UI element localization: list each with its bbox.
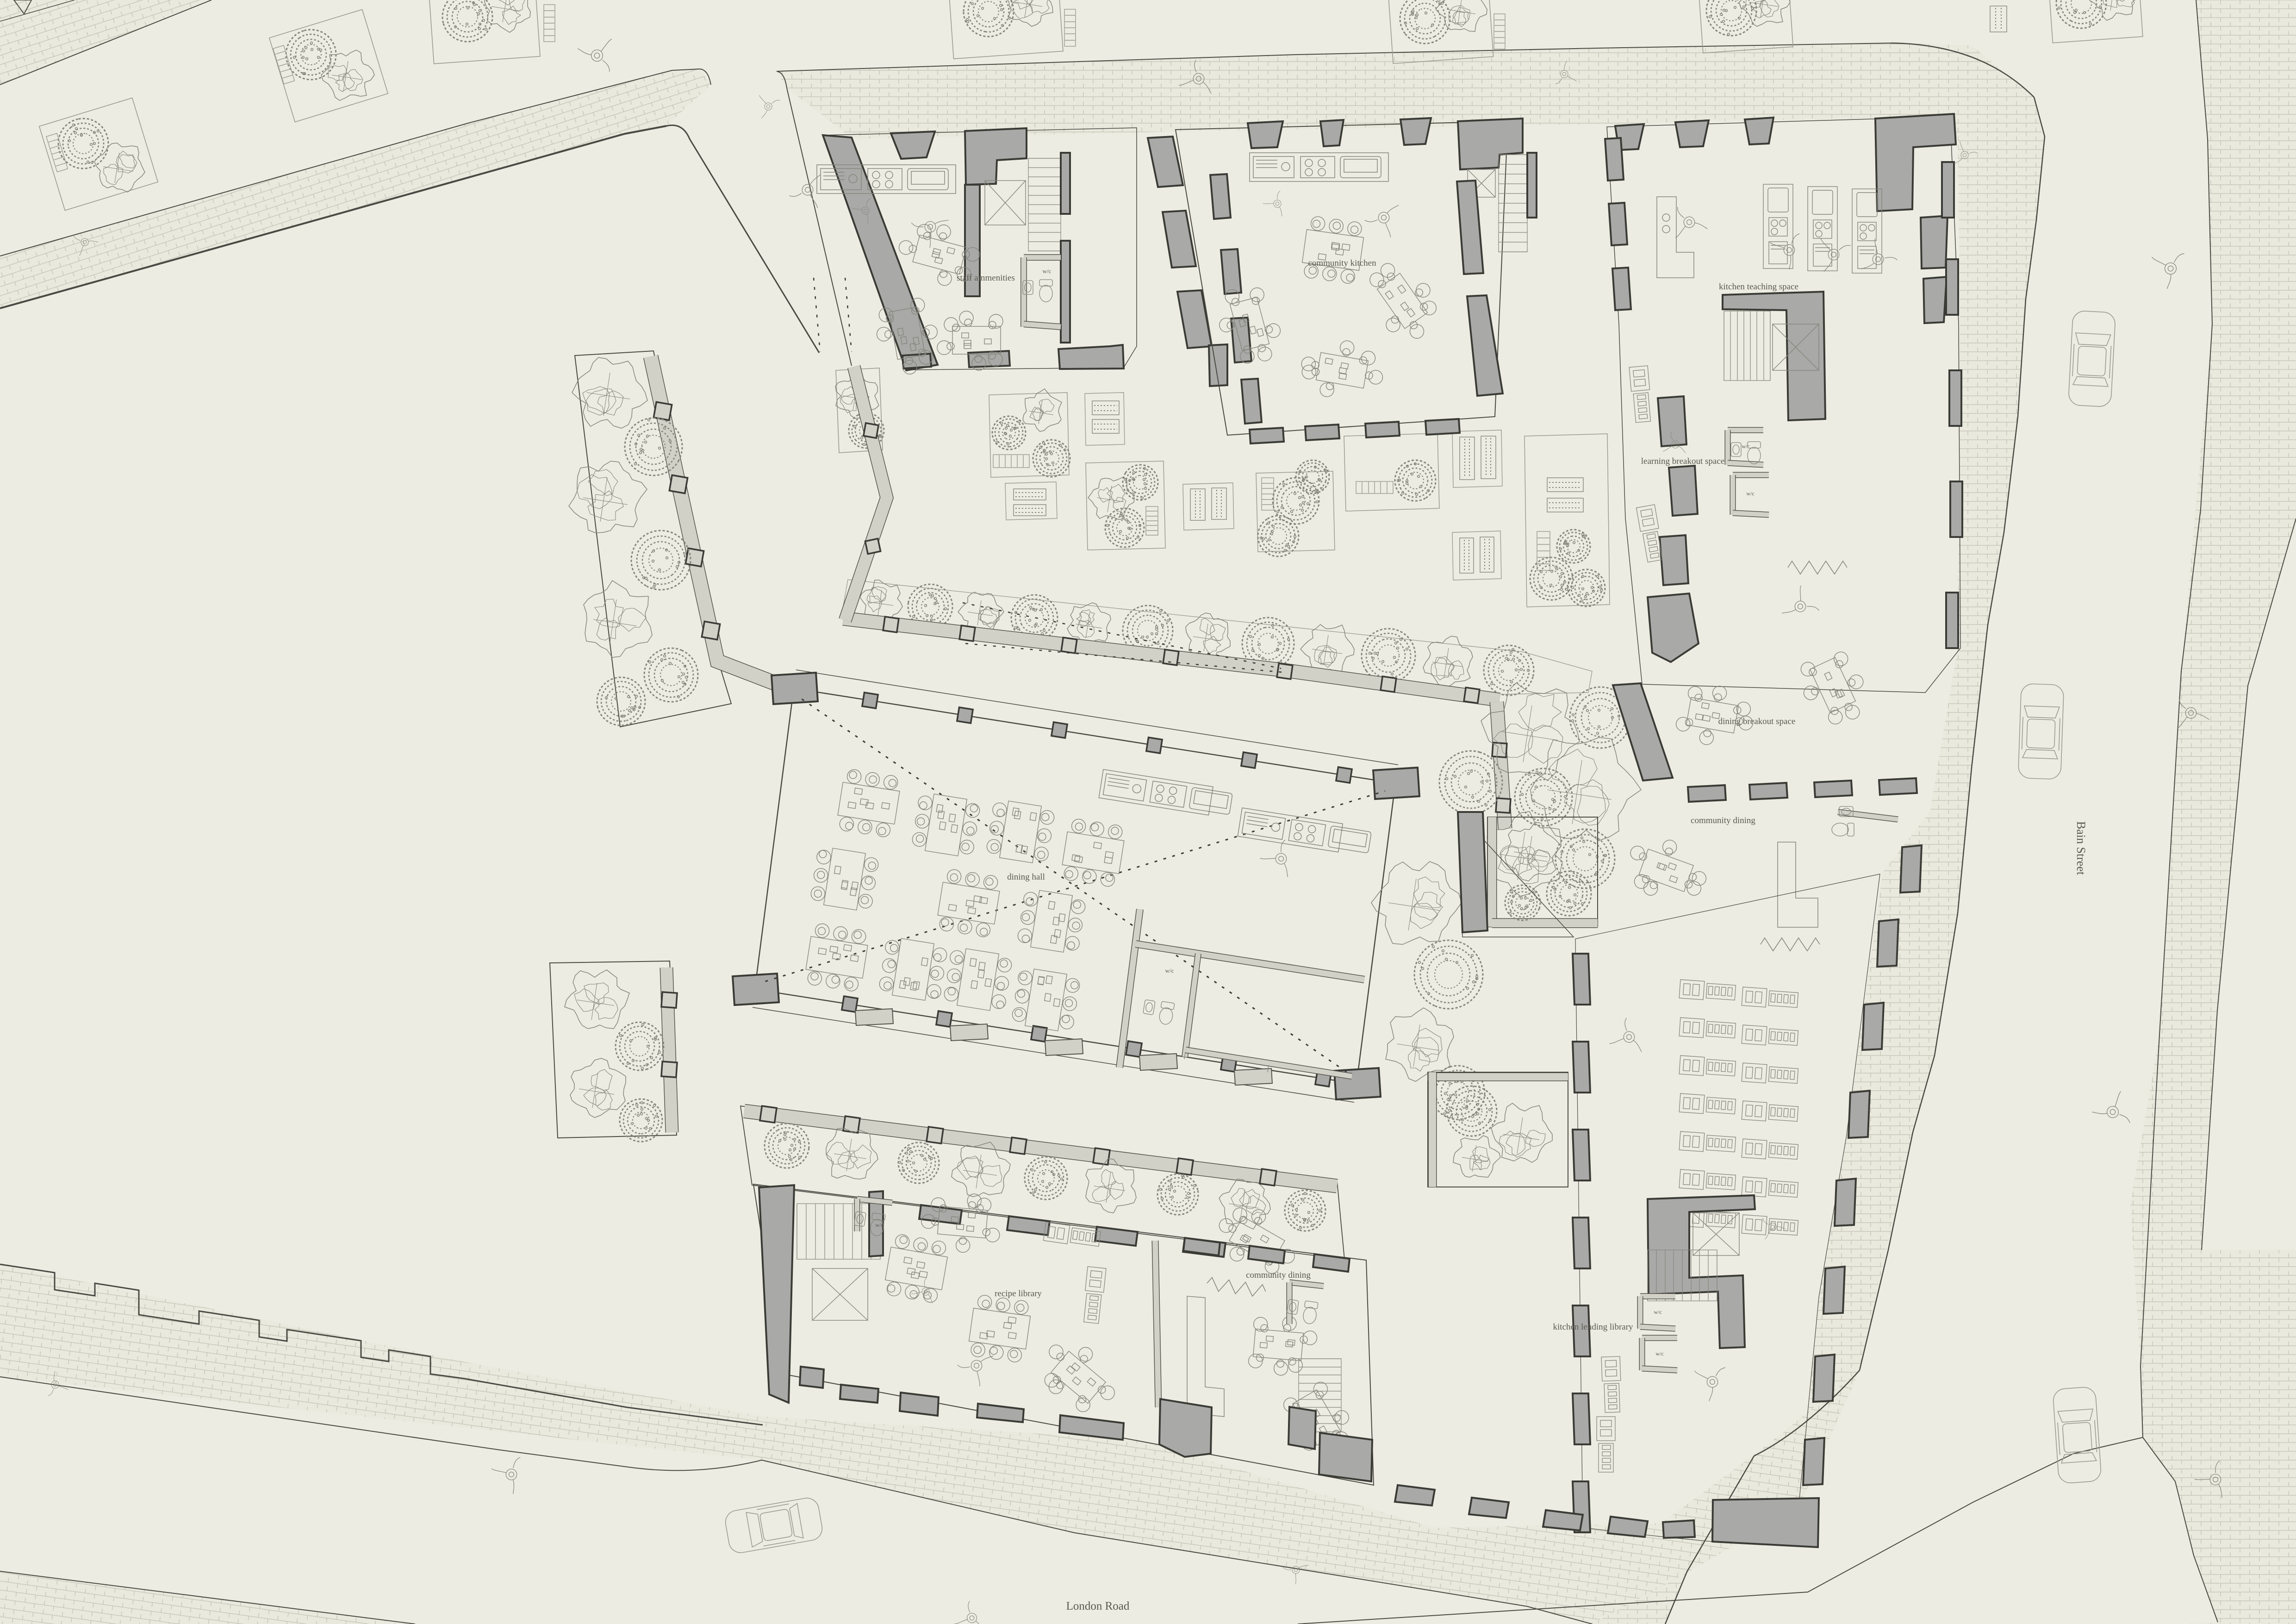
svg-text:community dining: community dining xyxy=(1246,1270,1311,1280)
svg-text:London Road: London Road xyxy=(1066,1600,1130,1612)
svg-text:community kitchen: community kitchen xyxy=(1308,258,1376,268)
svg-text:w/c: w/c xyxy=(1742,443,1749,450)
svg-text:w/c: w/c xyxy=(875,1222,883,1228)
svg-text:kitchen teaching space: kitchen teaching space xyxy=(1719,282,1798,292)
svg-text:community dining: community dining xyxy=(1691,816,1755,825)
svg-text:w/c: w/c xyxy=(1043,268,1052,275)
svg-text:w/c: w/c xyxy=(1654,1309,1661,1315)
svg-text:learning breakout space: learning breakout space xyxy=(1641,456,1724,466)
svg-text:staff ammenities: staff ammenities xyxy=(957,273,1015,283)
svg-text:dining hall: dining hall xyxy=(1007,872,1045,882)
svg-text:Bain Street: Bain Street xyxy=(2074,821,2088,875)
svg-text:w/c: w/c xyxy=(1655,1350,1663,1357)
svg-text:kitchen lending library: kitchen lending library xyxy=(1553,1322,1633,1332)
svg-text:w/c: w/c xyxy=(1165,967,1174,974)
svg-text:dining breakout space: dining breakout space xyxy=(1718,717,1796,726)
svg-text:recipe library: recipe library xyxy=(995,1289,1042,1299)
svg-text:w/c: w/c xyxy=(1746,490,1754,497)
